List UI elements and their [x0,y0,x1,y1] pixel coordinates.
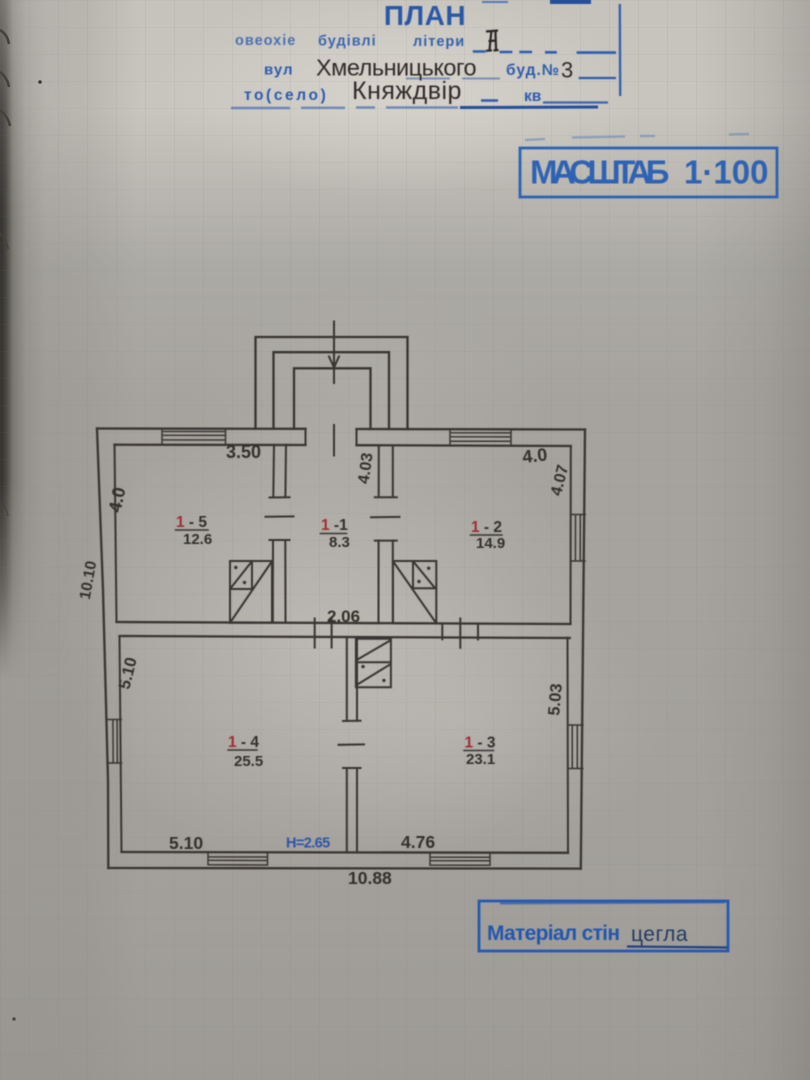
svg-text:2.06: 2.06 [327,607,360,626]
svg-text:кв: кв [524,88,541,105]
svg-text:10.88: 10.88 [348,868,392,888]
svg-text:Матеріал стін: Матеріал стін [487,922,620,945]
svg-text:1 - 2: 1 - 2 [471,519,502,536]
svg-text:25.5: 25.5 [234,753,263,770]
svg-text:4.0: 4.0 [105,485,130,514]
svg-text:літери: літери [413,34,465,50]
svg-text:4.03: 4.03 [355,452,376,485]
svg-text:4.76: 4.76 [401,832,435,852]
svg-text:1 - 3: 1 - 3 [465,735,496,752]
svg-text:1 - 5: 1 - 5 [176,514,207,531]
svg-text:будівлі: будівлі [318,34,377,50]
svg-text:12.6: 12.6 [183,531,212,548]
svg-text:овеохіе: овеохіе [235,33,296,49]
svg-text:1 - 4: 1 - 4 [228,734,259,751]
svg-text:цегла: цегла [631,923,688,946]
svg-text:МАСШТАБ: МАСШТАБ [530,154,669,191]
svg-text:то(село): то(село) [244,87,328,104]
svg-text:буд.№: буд.№ [506,62,560,79]
svg-text:10.10: 10.10 [77,560,100,601]
svg-text:8.3: 8.3 [329,534,350,551]
svg-text:вул: вул [264,62,294,79]
svg-text:ПЛАН: ПЛАН [384,0,466,31]
svg-text:4.0: 4.0 [521,444,548,467]
svg-text:1·100: 1·100 [684,154,768,191]
svg-text:5.03: 5.03 [545,683,566,717]
svg-text:Н=2.65: Н=2.65 [286,836,330,852]
svg-text:4.07: 4.07 [548,463,572,497]
svg-text:Княждвір: Княждвір [352,77,462,105]
svg-text:3: 3 [561,58,573,83]
svg-text:5.10: 5.10 [169,833,203,853]
svg-text:14.9: 14.9 [476,535,505,552]
svg-text:23.1: 23.1 [466,751,495,768]
svg-text:1 -1: 1 -1 [321,517,348,534]
svg-text:3.50: 3.50 [226,442,261,462]
